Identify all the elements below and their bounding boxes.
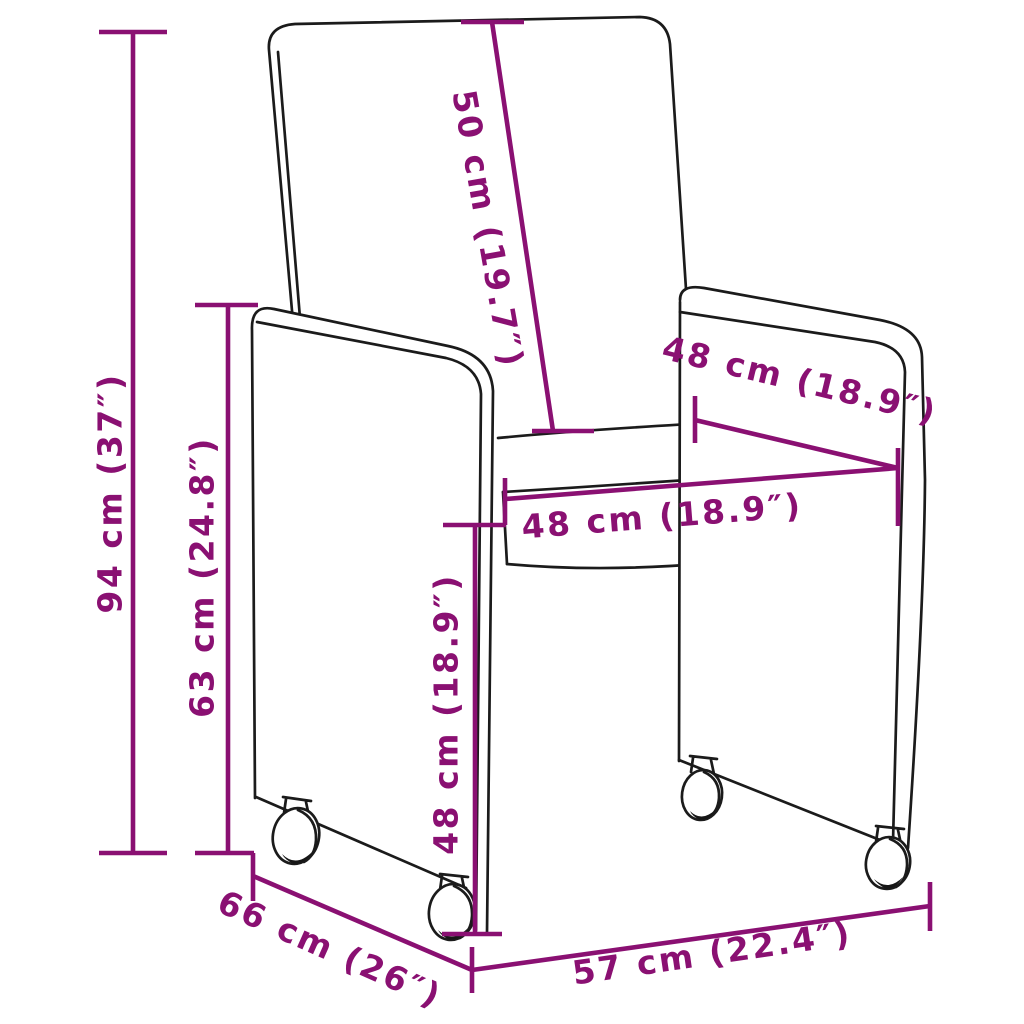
label-seat-height: 48 cm (18.9″) — [427, 573, 466, 855]
label-overall-height: 94 cm (37″) — [91, 372, 130, 613]
dimension-overall-width: 57 cm (22.4″) — [472, 882, 930, 993]
label-overall-width: 57 cm (22.4″) — [570, 913, 854, 992]
label-overall-depth: 66 cm (26″) — [212, 882, 448, 1016]
chair-drawing — [252, 17, 925, 943]
label-armrest-height: 63 cm (24.8″) — [183, 436, 222, 718]
chair-dimension-diagram: 94 cm (37″) 63 cm (24.8″) 50 cm (19.7″) … — [0, 0, 1024, 1024]
dimension-armrest-height: 63 cm (24.8″) — [183, 305, 259, 853]
dimension-overall-height: 94 cm (37″) — [91, 32, 168, 853]
dimension-diagram-stage: 94 cm (37″) 63 cm (24.8″) 50 cm (19.7″) … — [0, 0, 1024, 1024]
